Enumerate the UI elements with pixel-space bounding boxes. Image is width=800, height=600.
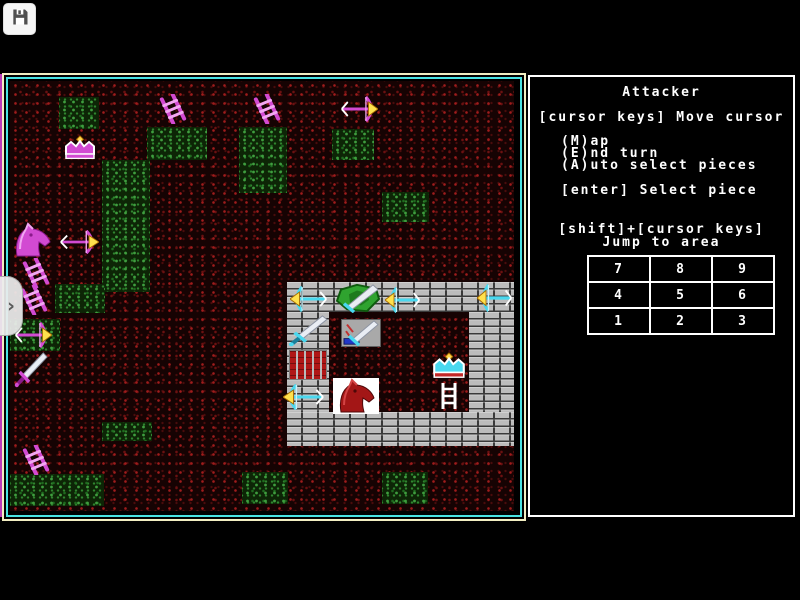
attacker-ladder-piece[interactable] xyxy=(251,94,283,124)
defender-crown-piece[interactable] xyxy=(430,352,468,380)
select-piece-help: [enter] Select piece xyxy=(561,183,758,198)
info-panel: Attacker [cursor keys] Move cursor (M)ap… xyxy=(528,75,795,517)
jump-cell-1[interactable]: 1 xyxy=(588,308,650,334)
white-ladder-w-piece[interactable] xyxy=(439,382,459,410)
attacker-bow-r-piece[interactable] xyxy=(340,96,378,122)
jump-cell-9[interactable]: 9 xyxy=(712,256,774,282)
grass-patch xyxy=(102,160,150,292)
grass-patch xyxy=(242,472,288,504)
grass-patch xyxy=(102,422,152,441)
sidebar-expand-tab[interactable]: › xyxy=(0,276,23,336)
grass-patch xyxy=(59,97,99,129)
castle-wall-bottom xyxy=(287,412,514,446)
floppy-disk-icon xyxy=(10,7,30,31)
grass-patch xyxy=(10,474,104,506)
jump-help-line2: Jump to area xyxy=(530,235,793,250)
grass-patch xyxy=(239,127,287,193)
attacker-ladder-piece[interactable] xyxy=(20,258,52,288)
game-viewport-inner-border xyxy=(6,77,522,517)
defender-bow-l-piece[interactable] xyxy=(290,286,328,312)
jump-cell-7[interactable]: 7 xyxy=(588,256,650,282)
grass-patch xyxy=(332,129,374,160)
menu-auto-select[interactable]: (A)uto select pieces xyxy=(561,158,758,173)
save-button[interactable] xyxy=(3,3,36,35)
jump-cell-6[interactable]: 6 xyxy=(712,282,774,308)
attacker-crown-piece[interactable] xyxy=(62,135,98,161)
grass-patch xyxy=(147,127,207,160)
jump-area-grid: 789456123 xyxy=(587,255,775,335)
castle-gate xyxy=(289,350,327,380)
jump-cell-3[interactable]: 3 xyxy=(712,308,774,334)
attacker-ladder-piece[interactable] xyxy=(157,94,189,124)
defender-sword-tile-piece[interactable] xyxy=(341,319,381,347)
jump-cell-4[interactable]: 4 xyxy=(588,282,650,308)
defender-shield-piece[interactable] xyxy=(335,283,381,313)
attacker-horse-piece[interactable] xyxy=(12,222,52,258)
attacker-bow-r-piece[interactable] xyxy=(59,230,99,254)
red-horse-tile-piece[interactable] xyxy=(333,378,379,414)
chevron-right-icon: › xyxy=(7,297,15,316)
grass-patch xyxy=(55,284,105,313)
grass-patch xyxy=(382,192,429,222)
defender-sword-piece[interactable] xyxy=(288,315,328,347)
grass-patch xyxy=(382,472,428,504)
turn-title: Attacker xyxy=(530,85,793,100)
game-viewport xyxy=(2,73,526,521)
move-cursor-help: [cursor keys] Move cursor xyxy=(530,110,793,125)
jump-cell-8[interactable]: 8 xyxy=(650,256,712,282)
defender-bow-l-piece[interactable] xyxy=(477,284,513,312)
battle-map[interactable] xyxy=(10,81,514,511)
attacker-ladder-piece[interactable] xyxy=(20,445,52,475)
castle-wall-right xyxy=(469,312,514,412)
jump-cell-2[interactable]: 2 xyxy=(650,308,712,334)
defender-bow-l-piece[interactable] xyxy=(283,384,325,410)
jump-cell-5[interactable]: 5 xyxy=(650,282,712,308)
defender-bow-l-piece[interactable] xyxy=(385,287,421,313)
attacker-sword-piece[interactable] xyxy=(14,352,48,388)
